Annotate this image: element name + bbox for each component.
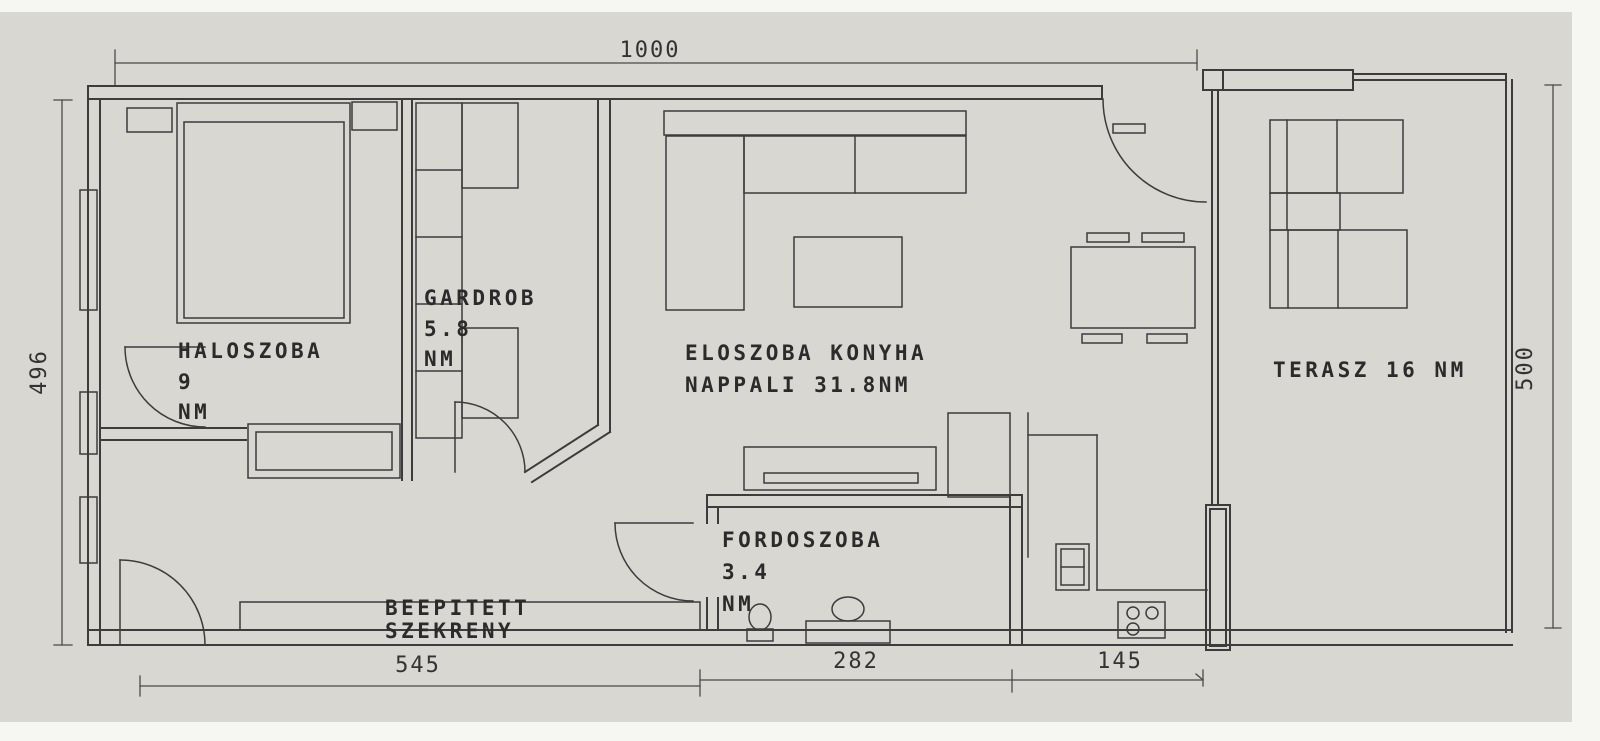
dim-bottom-center: 282 (833, 649, 879, 674)
label-terrace: TERASZ 16 NM (1273, 358, 1467, 382)
bathroom-unit: NM (722, 592, 754, 616)
dim-top-width: 1000 (620, 38, 681, 63)
wardrobe-unit: NM (424, 347, 456, 371)
wardrobe-area: 5.8 (424, 317, 472, 341)
bedroom-unit: NM (178, 400, 210, 424)
bedroom-name: HALOSZOBA (178, 339, 323, 363)
bedroom-area: 9 (178, 370, 194, 394)
dim-right-height: 500 (1513, 345, 1538, 391)
living-name: ELOSZOBA KONYHA (685, 341, 927, 365)
dim-bottom-right: 145 (1097, 649, 1143, 674)
living-area: NAPPALI 31.8NM (685, 373, 911, 397)
closet-name-line1: BEEPITETT (385, 596, 530, 620)
dim-left-height: 496 (27, 349, 52, 395)
closet-name-line2: SZEKRENY (385, 619, 514, 643)
bathroom-area: 3.4 (722, 560, 770, 584)
bathroom-name: FORDOSZOBA (722, 528, 883, 552)
wardrobe-name: GARDROB (424, 286, 537, 310)
dim-bottom-left: 545 (395, 653, 441, 678)
floor-plan-canvas: 1000 496 500 545 282 145 (0, 0, 1600, 741)
label-closet: BEEPITETT SZEKRENY (385, 596, 530, 643)
